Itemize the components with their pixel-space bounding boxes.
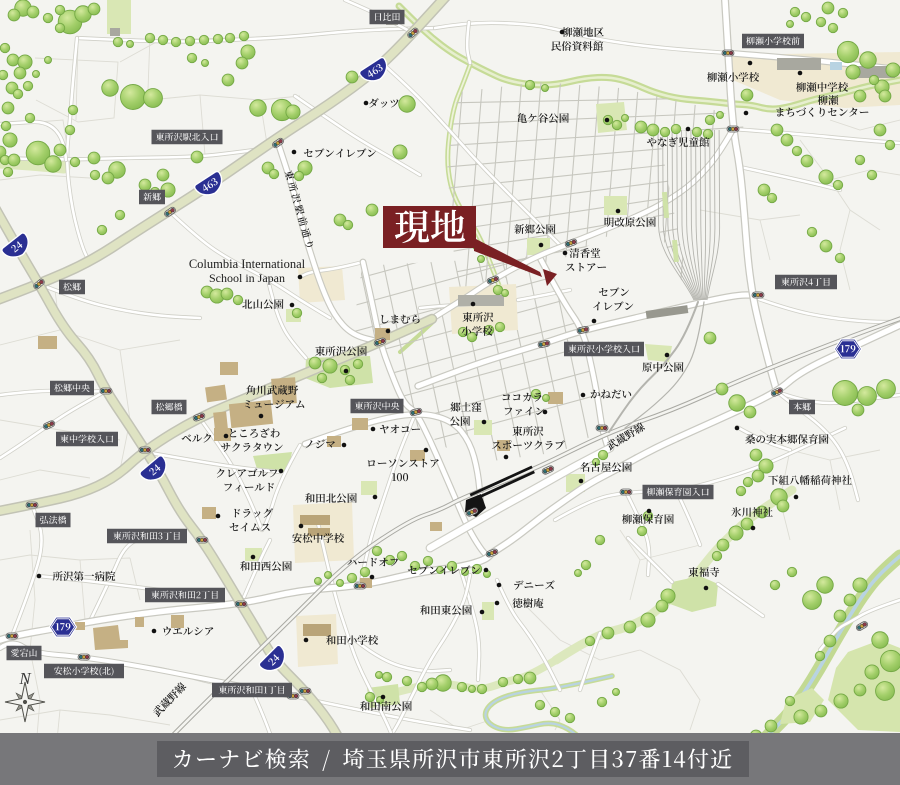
svg-text:Columbia International: Columbia International <box>189 257 306 271</box>
svg-text:School in Japan: School in Japan <box>209 271 285 285</box>
svg-text:N: N <box>18 669 32 688</box>
